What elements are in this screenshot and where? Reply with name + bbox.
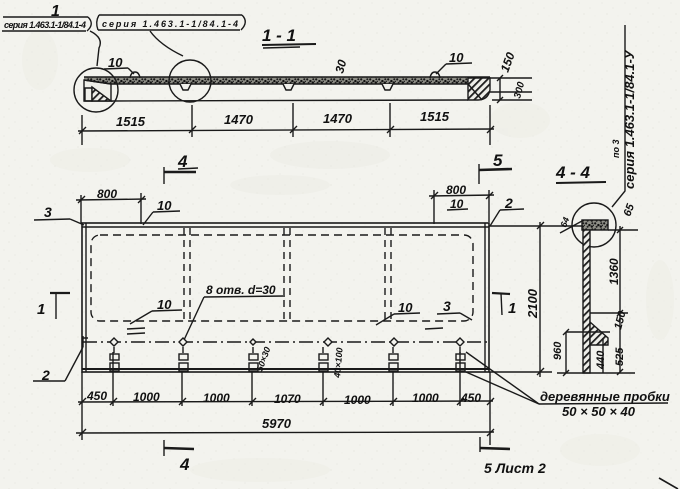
svg-text:1000: 1000: [203, 391, 230, 405]
svg-text:1360: 1360: [607, 258, 621, 285]
svg-text:50 × 50 × 40: 50 × 50 × 40: [562, 404, 636, 419]
svg-text:8 отв. d=30: 8 отв. d=30: [206, 283, 276, 297]
svg-text:серия 1.463.1-1/84.1-4: серия 1.463.1-1/84.1-4: [4, 20, 86, 30]
svg-text:1515: 1515: [116, 114, 146, 129]
svg-text:1: 1: [37, 301, 45, 318]
svg-text:440: 440: [595, 350, 607, 370]
svg-text:525: 525: [614, 347, 626, 366]
svg-text:1000: 1000: [412, 391, 439, 405]
svg-text:1 - 1: 1 - 1: [262, 26, 296, 45]
svg-text:5970: 5970: [262, 416, 292, 431]
svg-text:по 3: по 3: [611, 139, 621, 158]
svg-text:4: 4: [179, 455, 190, 474]
svg-text:1000: 1000: [344, 393, 371, 407]
svg-text:1000: 1000: [133, 390, 160, 404]
svg-text:серия 1.463.1-1/84.1-4: серия 1.463.1-1/84.1-4: [102, 19, 238, 29]
svg-text:1470: 1470: [323, 111, 353, 126]
svg-text:деревянные пробки: деревянные пробки: [540, 389, 670, 404]
svg-text:5 Лист 2: 5 Лист 2: [484, 460, 546, 476]
svg-text:2: 2: [504, 195, 513, 211]
svg-text:1070: 1070: [274, 392, 301, 406]
svg-text:5: 5: [493, 151, 503, 170]
svg-text:800: 800: [446, 183, 466, 197]
svg-text:960: 960: [552, 341, 564, 360]
svg-text:800: 800: [97, 187, 117, 201]
svg-text:4 - 4: 4 - 4: [555, 163, 591, 182]
svg-text:450: 450: [86, 389, 107, 403]
svg-text:450: 450: [460, 391, 481, 405]
svg-text:серия 1.463.1-1/84.1-У: серия 1.463.1-1/84.1-У: [622, 49, 637, 189]
svg-text:3: 3: [44, 204, 52, 220]
svg-text:2100: 2100: [525, 288, 540, 319]
svg-text:3: 3: [443, 298, 451, 314]
svg-text:1: 1: [508, 300, 516, 317]
svg-text:1470: 1470: [224, 112, 254, 127]
svg-text:1515: 1515: [420, 109, 450, 124]
